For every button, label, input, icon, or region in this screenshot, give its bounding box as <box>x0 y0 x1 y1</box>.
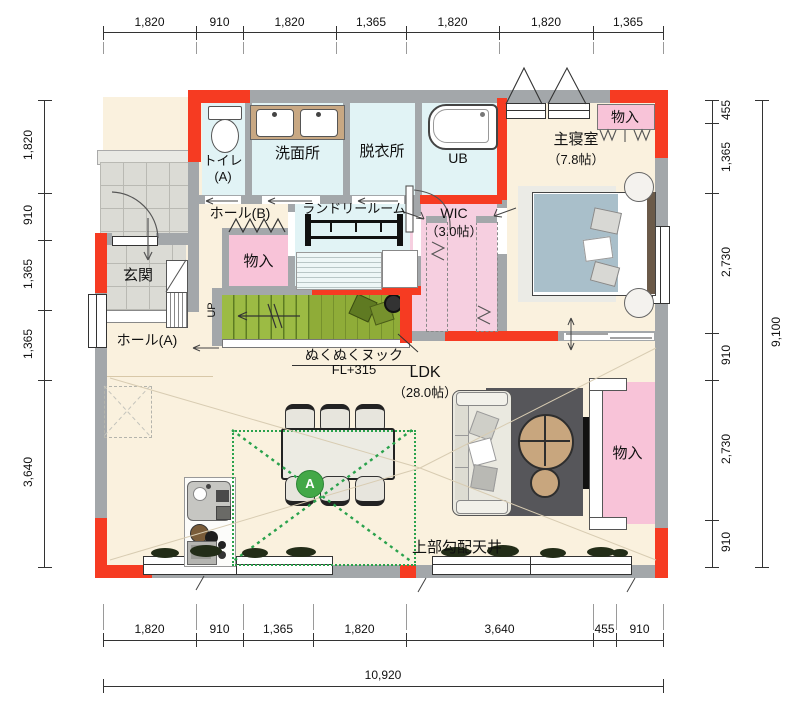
dressing-label: 脱衣所 <box>348 140 416 161</box>
dim-stub <box>663 42 664 54</box>
dim-tick <box>38 310 52 311</box>
wic-label: WIC（3.0帖） <box>414 205 494 240</box>
dim-tick <box>38 240 52 241</box>
dim-line-top <box>103 32 663 33</box>
dim-top-1: 910 <box>196 15 243 29</box>
dim-top-0: 1,820 <box>103 15 196 29</box>
ldk-label: LDK（28.0帖） <box>378 364 472 402</box>
dim-left-4: 3,640 <box>21 437 35 507</box>
dim-bottom-5: 455 <box>593 622 616 636</box>
dim-tick <box>755 100 769 101</box>
dim-left-3: 1,365 <box>21 309 35 379</box>
ceiling-note-label: 上部勾配天井 <box>402 536 512 557</box>
dim-right-3: 910 <box>719 320 733 390</box>
dim-right-2: 2,730 <box>719 227 733 297</box>
laundry-label: ランドリールーム <box>293 198 415 217</box>
dim-tick <box>755 567 769 568</box>
dim-stub <box>499 42 500 54</box>
dim-tick <box>663 679 664 693</box>
dim-left-0: 1,820 <box>21 110 35 180</box>
dim-stub <box>663 604 664 630</box>
floor-plan: トイレ(A) 洗面所 脱衣所 UB 主寝室（7.8帖） 物入 ホール(B) ラン… <box>0 0 800 710</box>
stairs-up-label: UP <box>206 296 218 324</box>
dim-top-2: 1,820 <box>243 15 336 29</box>
zone-a-marker: A <box>296 470 324 498</box>
entrance-door-arc <box>112 192 158 260</box>
dim-stub <box>243 42 244 54</box>
dim-right-4: 2,730 <box>719 414 733 484</box>
zone-a-diagonals <box>232 430 412 562</box>
dim-bottom-0: 1,820 <box>103 622 196 636</box>
dim-stub <box>406 42 407 54</box>
dim-bottom-1: 910 <box>196 622 243 636</box>
dim-tick <box>38 380 52 381</box>
dim-bottom-2: 1,365 <box>243 622 313 636</box>
entrance-label: 玄関 <box>106 264 170 285</box>
dim-stub <box>103 42 104 54</box>
dim-stub <box>336 42 337 54</box>
dim-right-total: 9,100 <box>769 297 783 367</box>
casement-window-symbols <box>506 68 586 104</box>
bedroom-storage-label: 物入 <box>597 107 653 127</box>
dim-stub <box>593 42 594 54</box>
bath-label: UB <box>422 150 494 166</box>
dim-stub <box>196 42 197 54</box>
dim-line-bottom <box>103 640 663 641</box>
bedroom-label: 主寝室（7.8帖） <box>518 128 634 168</box>
hall-b-label: ホール(B) <box>193 203 287 223</box>
dim-bottom-3: 1,820 <box>313 622 406 636</box>
dim-top-6: 1,365 <box>593 15 663 29</box>
dim-tick <box>38 193 52 194</box>
dim-line-bottom-total <box>103 686 663 687</box>
hallb-storage-label: 物入 <box>229 250 288 271</box>
dim-line-left <box>44 100 45 567</box>
toilet-label: トイレ(A) <box>200 150 246 184</box>
dim-tick <box>663 633 664 647</box>
dim-tick <box>705 123 719 124</box>
stairs-up-arrow <box>238 304 300 328</box>
dim-tick <box>38 100 52 101</box>
dim-right-5: 910 <box>719 507 733 577</box>
dim-tick <box>705 100 719 101</box>
dim-tick <box>705 567 719 568</box>
ldk-storage-label: 物入 <box>600 442 655 463</box>
dim-top-4: 1,820 <box>406 15 499 29</box>
washroom-label: 洗面所 <box>252 142 343 163</box>
dim-top-5: 1,820 <box>499 15 593 29</box>
dim-line-right-total <box>762 100 763 567</box>
dim-left-2: 1,365 <box>21 239 35 309</box>
dim-right-1: 1,365 <box>719 122 733 192</box>
dim-bottom-total: 10,920 <box>103 668 663 682</box>
hall-a-label: ホール(A) <box>102 330 192 350</box>
dim-bottom-6: 910 <box>616 622 663 636</box>
dim-tick <box>705 380 719 381</box>
dim-tick <box>705 520 719 521</box>
dim-top-3: 1,365 <box>336 15 406 29</box>
dim-tick <box>663 26 664 40</box>
dim-bottom-4: 3,640 <box>406 622 593 636</box>
dim-tick <box>705 193 719 194</box>
dim-tick <box>705 333 719 334</box>
dim-tick <box>38 567 52 568</box>
